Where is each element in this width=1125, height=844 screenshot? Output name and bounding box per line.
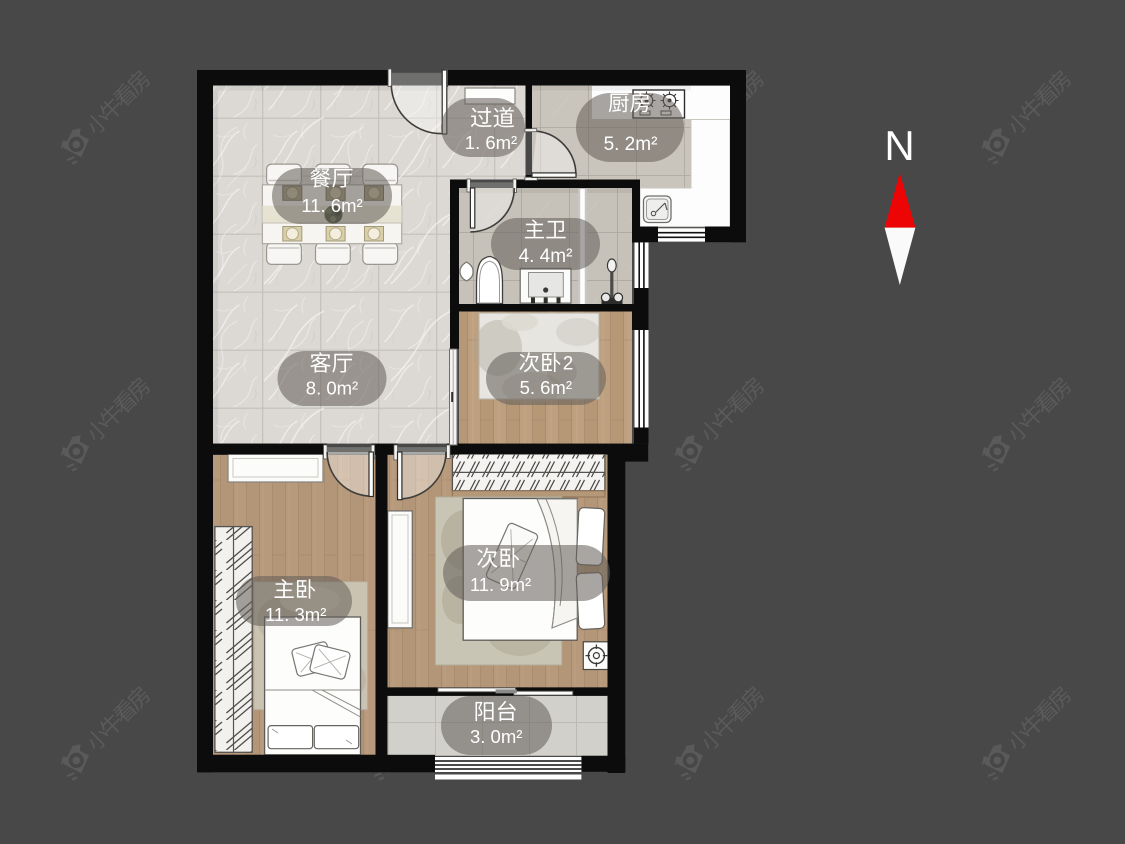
svg-text:1. 6m²: 1. 6m² [465, 132, 517, 153]
svg-text:11. 6m²: 11. 6m² [301, 195, 362, 216]
svg-text:8. 0m²: 8. 0m² [306, 378, 358, 399]
svg-text:11. 9m²: 11. 9m² [470, 574, 531, 595]
svg-text:4. 4m²: 4. 4m² [519, 246, 573, 267]
svg-text:5. 6m²: 5. 6m² [520, 377, 572, 398]
svg-text:3. 0m²: 3. 0m² [470, 726, 522, 747]
svg-text:2: 2 [563, 354, 574, 375]
svg-text:11. 3m²: 11. 3m² [265, 604, 326, 625]
svg-text:N: N [884, 122, 914, 169]
svg-text:5. 2m²: 5. 2m² [604, 134, 658, 155]
